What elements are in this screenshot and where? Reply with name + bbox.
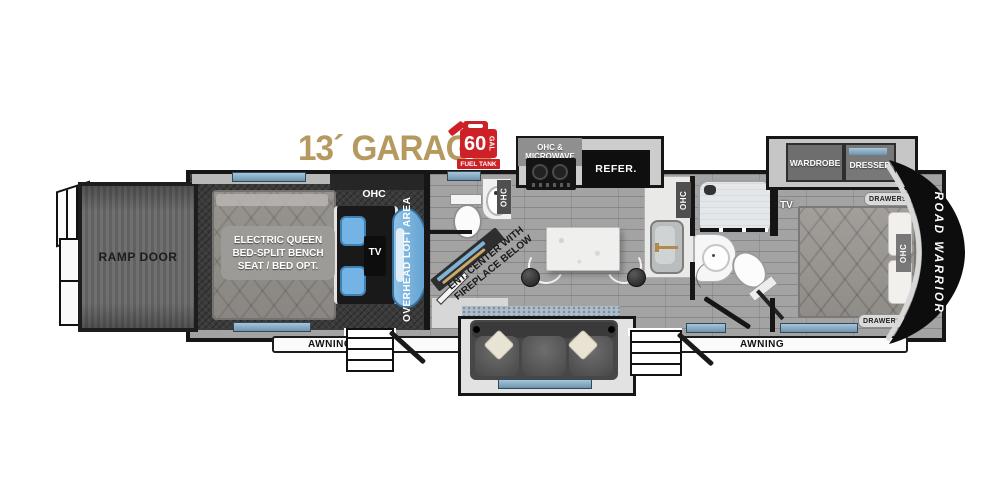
- burner: [532, 164, 548, 180]
- burner: [552, 164, 568, 180]
- front-cap: [886, 152, 970, 352]
- sofa-slide-window: [498, 379, 592, 389]
- garage-bed-pillow: [216, 194, 328, 206]
- vanity-sink: [702, 244, 730, 272]
- kitchen-faucet: [658, 246, 678, 249]
- ohc-microwave-line1: OHC &: [518, 143, 582, 153]
- overhead-loft-label: OVERHEAD LOFT AREA: [402, 194, 420, 324]
- fuel-tank-caption: FUEL TANK: [457, 159, 500, 169]
- ramp-door-label: RAMP DOOR: [99, 250, 178, 264]
- vanity-faucet: [712, 254, 715, 257]
- entry-steps-garage: [346, 328, 394, 372]
- bedroom-tv-label: TV: [780, 200, 802, 212]
- vehicle-seat-rear: [340, 266, 366, 296]
- kitchen-island: [546, 227, 620, 271]
- brand-label: ROAD WARRIOR: [930, 178, 944, 328]
- cupholder: [473, 326, 480, 333]
- half-bath-ohc-label: OHC: [497, 180, 511, 214]
- fuel-capacity-unit: GAL: [487, 136, 494, 151]
- bedroom-window: [780, 323, 858, 333]
- bedroom-tv-cabinet: [770, 188, 778, 236]
- wardrobe: WARDROBE: [786, 143, 844, 182]
- shower-glass-door: [700, 228, 768, 232]
- awning-right-label: AWNING: [740, 339, 784, 350]
- bathroom-wall: [690, 262, 695, 300]
- sofa-cushion: [522, 336, 566, 376]
- garage-bed-label-line2: BED-SPLIT BENCH: [232, 247, 323, 260]
- cupholder: [608, 326, 615, 333]
- entry-steps-main: [630, 330, 682, 376]
- garage-ohc-label: OHC: [348, 188, 400, 200]
- rv-floorplan: 13´ GARAGE 60 GAL FUEL TANK RAMP DOOR OH…: [0, 0, 1000, 500]
- fuel-can-body: 60 GAL: [460, 129, 497, 158]
- bathroom-window: [686, 323, 726, 333]
- garage-bed-label-line3: SEAT / BED OPT.: [238, 260, 318, 273]
- garage-window-top: [232, 172, 306, 182]
- fuel-capacity-value: 60: [464, 134, 486, 154]
- refrigerator: REFER.: [582, 150, 650, 188]
- garage-window-bottom: [233, 322, 311, 332]
- cooktop-knobs: [532, 183, 570, 187]
- half-bath-wall: [430, 230, 472, 234]
- bar-stool: [521, 268, 540, 287]
- fuel-tank-icon: 60 GAL FUEL TANK: [452, 119, 502, 169]
- garage-tv-label: TV: [362, 247, 388, 259]
- ramp-door: RAMP DOOR: [78, 182, 198, 332]
- half-bath-window: [447, 171, 481, 181]
- cooktop: [526, 158, 576, 190]
- shower-head: [704, 185, 716, 195]
- vehicle-seat-front: [340, 216, 366, 246]
- garage-partition-wall: [424, 174, 430, 330]
- garage-bed-label: ELECTRIC QUEEN BED-SPLIT BENCH SEAT / BE…: [221, 226, 335, 280]
- fuel-can-handle-hole: [468, 124, 483, 128]
- garage-bed-label-line1: ELECTRIC QUEEN: [234, 234, 322, 247]
- kitchen-ohc-label: OHC: [676, 182, 691, 218]
- bedroom-wall: [770, 298, 775, 332]
- kitchen-faucet-handle: [655, 243, 659, 252]
- dresser-mirror: [849, 148, 887, 155]
- bar-stool: [627, 268, 646, 287]
